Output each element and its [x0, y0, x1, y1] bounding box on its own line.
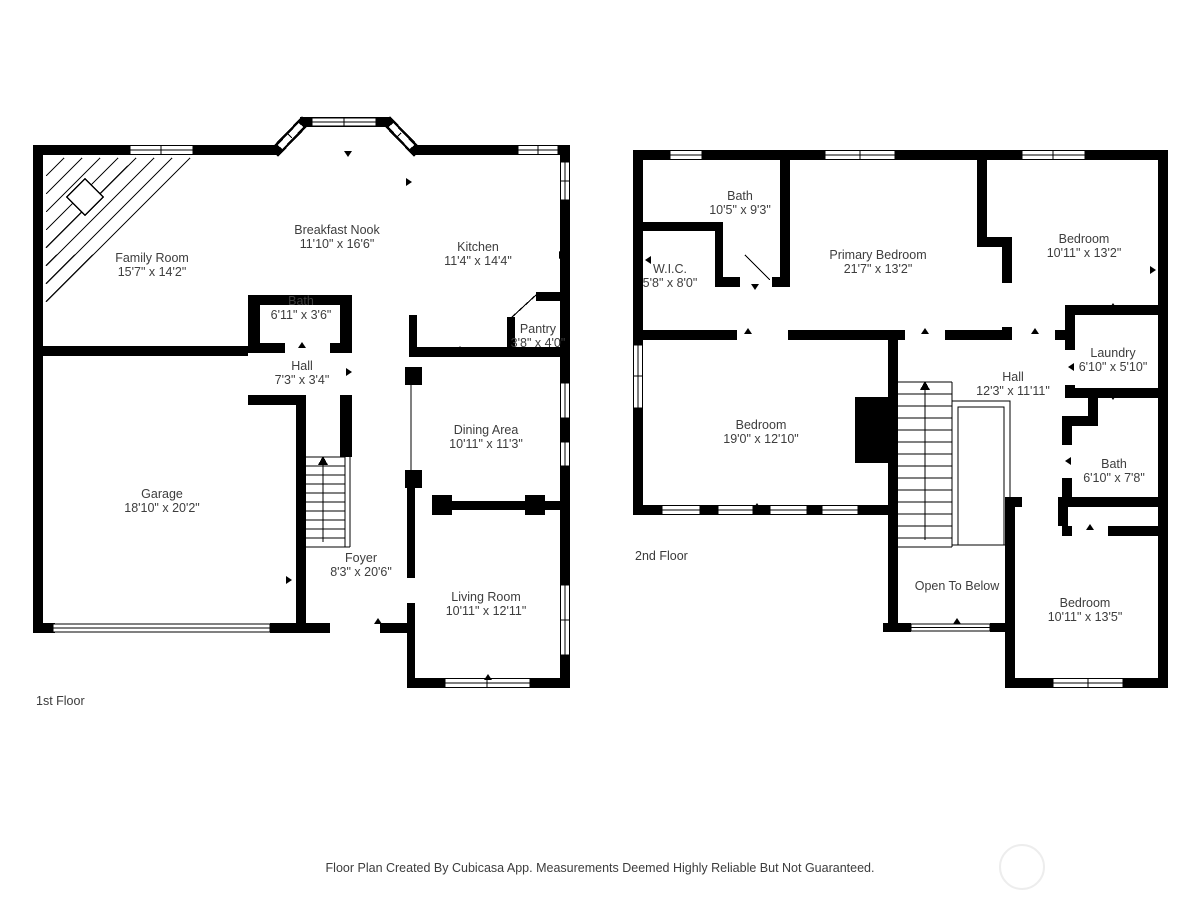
- room-name: Dining Area: [449, 423, 523, 437]
- stairwell-railing: [952, 401, 1010, 545]
- room-label-bedroom-west: Bedroom 19'0" x 12'10": [723, 418, 799, 446]
- room-label-bedroom-ne: Bedroom 10'11" x 13'2": [1047, 232, 1122, 260]
- room-dims: 15'7" x 14'2": [115, 265, 189, 279]
- room-label-wic: W.I.C. 5'8" x 8'0": [643, 262, 698, 290]
- room-name: Family Room: [115, 251, 189, 265]
- room-label-pantry: Pantry 3'8" x 4'0": [511, 322, 566, 350]
- room-dims: 6'10" x 5'10": [1079, 360, 1148, 374]
- room-label-garage: Garage 18'10" x 20'2": [124, 487, 200, 515]
- room-dims: 10'11" x 13'5": [1048, 610, 1123, 624]
- room-label-open-to-below: Open To Below: [915, 579, 1000, 593]
- room-name: Primary Bedroom: [829, 248, 926, 262]
- room-name: Foyer: [330, 551, 392, 565]
- room-name: Laundry: [1079, 346, 1148, 360]
- room-label-breakfast-nook: Breakfast Nook 11'10" x 16'6": [294, 223, 379, 251]
- room-dims: 21'7" x 13'2": [829, 262, 926, 276]
- stairs-first-floor: [302, 457, 350, 547]
- room-label-kitchen: Kitchen 11'4" x 14'4": [444, 240, 512, 268]
- room-name: Hall: [275, 359, 330, 373]
- room-label-family-room: Family Room 15'7" x 14'2": [115, 251, 189, 279]
- room-dims: 10'11" x 13'2": [1047, 246, 1122, 260]
- chimney-block: [855, 397, 898, 463]
- room-dims: 6'11" x 3'6": [271, 308, 332, 322]
- room-label-bedroom-se: Bedroom 10'11" x 13'5": [1048, 596, 1123, 624]
- room-dims: 5'8" x 8'0": [643, 276, 698, 290]
- room-dims: 12'3" x 11'11": [976, 384, 1050, 398]
- room-label-bath-1f: Bath 6'11" x 3'6": [271, 294, 332, 322]
- room-label-bath-2f-se: Bath 6'10" x 7'8": [1083, 457, 1145, 485]
- room-dims: 19'0" x 12'10": [723, 432, 799, 446]
- room-label-foyer: Foyer 8'3" x 20'6": [330, 551, 392, 579]
- room-name: Bedroom: [1047, 232, 1122, 246]
- room-name: Living Room: [446, 590, 527, 604]
- room-dims: 8'3" x 20'6": [330, 565, 392, 579]
- room-dims: 10'5" x 9'3": [709, 203, 771, 217]
- room-dims: 10'11" x 12'11": [446, 604, 527, 618]
- room-name: Bedroom: [723, 418, 799, 432]
- floor2-title: 2nd Floor: [635, 549, 688, 563]
- room-dims: 11'10" x 16'6": [294, 237, 379, 251]
- room-name: Bath: [1083, 457, 1145, 471]
- room-name: W.I.C.: [643, 262, 698, 276]
- floor1-title: 1st Floor: [36, 694, 85, 708]
- room-label-hall-1f: Hall 7'3" x 3'4": [275, 359, 330, 387]
- floorplan-page: Family Room 15'7" x 14'2" Breakfast Nook…: [0, 0, 1200, 900]
- room-dims: 6'10" x 7'8": [1083, 471, 1145, 485]
- room-dims: 11'4" x 14'4": [444, 254, 512, 268]
- survey-ticks: [36, 151, 1156, 680]
- room-label-primary-bedroom: Primary Bedroom 21'7" x 13'2": [829, 248, 926, 276]
- room-name: Breakfast Nook: [294, 223, 379, 237]
- room-name: Pantry: [511, 322, 566, 336]
- room-label-hall-2f: Hall 12'3" x 11'11": [976, 370, 1050, 398]
- room-dims: 10'11" x 11'3": [449, 437, 523, 451]
- room-label-living-room: Living Room 10'11" x 12'11": [446, 590, 527, 618]
- room-label-dining-area: Dining Area 10'11" x 11'3": [449, 423, 523, 451]
- corner-hatch: [46, 158, 190, 302]
- room-dims: 18'10" x 20'2": [124, 501, 200, 515]
- room-name: Kitchen: [444, 240, 512, 254]
- room-label-laundry: Laundry 6'10" x 5'10": [1079, 346, 1148, 374]
- room-dims: 3'8" x 4'0": [511, 336, 566, 350]
- floorplan-walls-svg: [0, 0, 1200, 900]
- room-name: Garage: [124, 487, 200, 501]
- room-name: Hall: [976, 370, 1050, 384]
- stairs-second-floor: [898, 382, 952, 547]
- hatch-diamond: [67, 179, 104, 216]
- room-name: Bath: [271, 294, 332, 308]
- room-label-bath-2f-nw: Bath 10'5" x 9'3": [709, 189, 771, 217]
- room-name: Bedroom: [1048, 596, 1123, 610]
- room-name: Bath: [709, 189, 771, 203]
- watermark-circle: [999, 844, 1045, 890]
- room-dims: 7'3" x 3'4": [275, 373, 330, 387]
- room-name: Open To Below: [915, 579, 1000, 593]
